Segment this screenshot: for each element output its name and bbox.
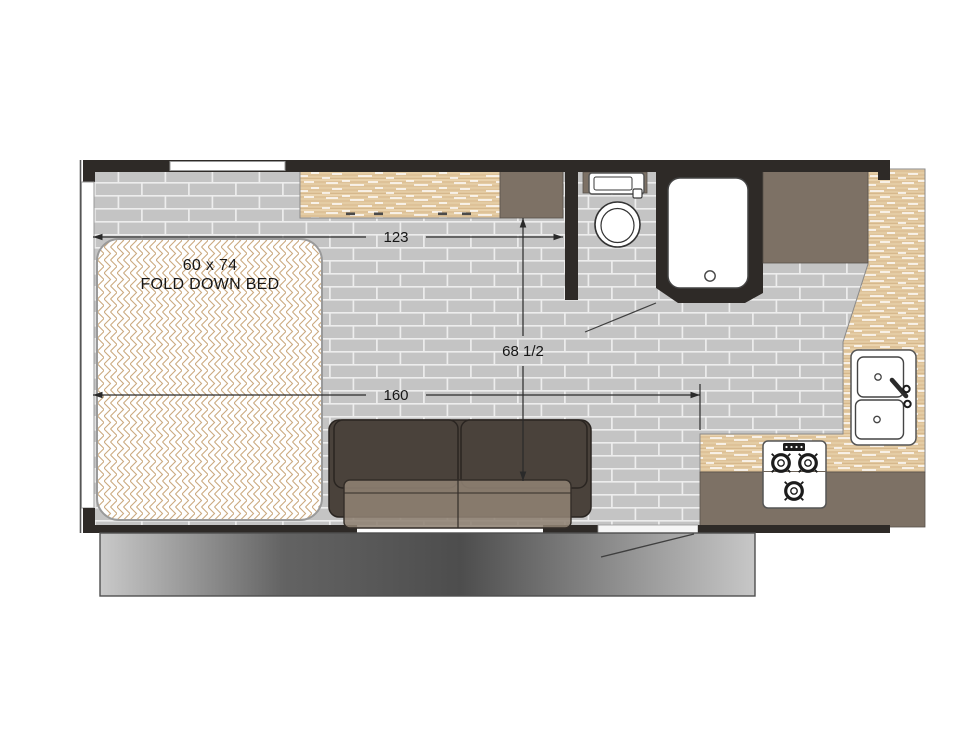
toilet-flush (633, 189, 642, 198)
front-wall-left (83, 525, 357, 533)
front-wall-right (698, 525, 890, 533)
shower-drain (705, 271, 715, 281)
floor-plan-drawing (0, 0, 980, 755)
sofa-back-cushion (334, 420, 458, 488)
slide-out (100, 533, 755, 596)
toilet-bowl-inner (601, 209, 634, 243)
entry-door-opening (598, 525, 698, 533)
fold-down-bed (97, 239, 322, 520)
left-wall-top (83, 160, 95, 182)
shower (656, 172, 763, 303)
slide-out-box (100, 533, 755, 596)
sink-drain (874, 416, 880, 422)
toilet-tank-lid (594, 177, 632, 190)
cooktop (763, 441, 826, 508)
faucet-knob (903, 386, 909, 392)
dinette-counter (300, 169, 500, 218)
window (82, 182, 95, 508)
floor-plan: 60 x 74 FOLD DOWN BED 123 68 1/2 160 (0, 0, 980, 755)
wardrobe-cabinet (763, 169, 868, 263)
sofa (329, 420, 591, 528)
double-sink (851, 350, 916, 445)
right-wall-stub (878, 172, 890, 180)
sink-drain (875, 374, 881, 380)
overhead-cabinet (500, 169, 563, 218)
window (170, 162, 285, 171)
faucet-knob (904, 401, 910, 407)
bathroom-wall (565, 172, 578, 300)
